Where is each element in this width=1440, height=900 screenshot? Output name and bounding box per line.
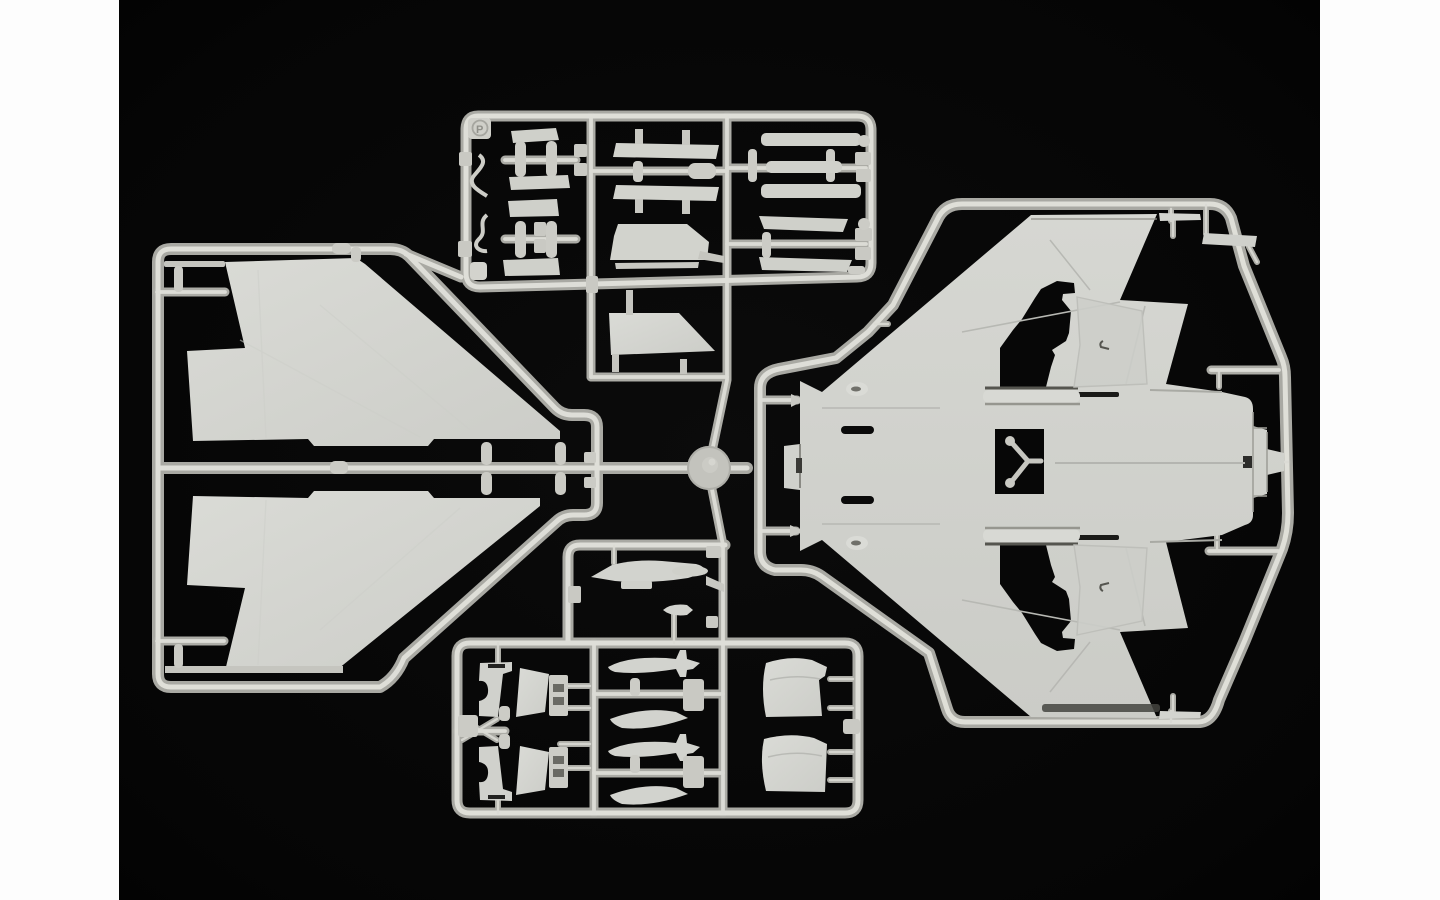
svg-text:P: P (476, 124, 483, 136)
